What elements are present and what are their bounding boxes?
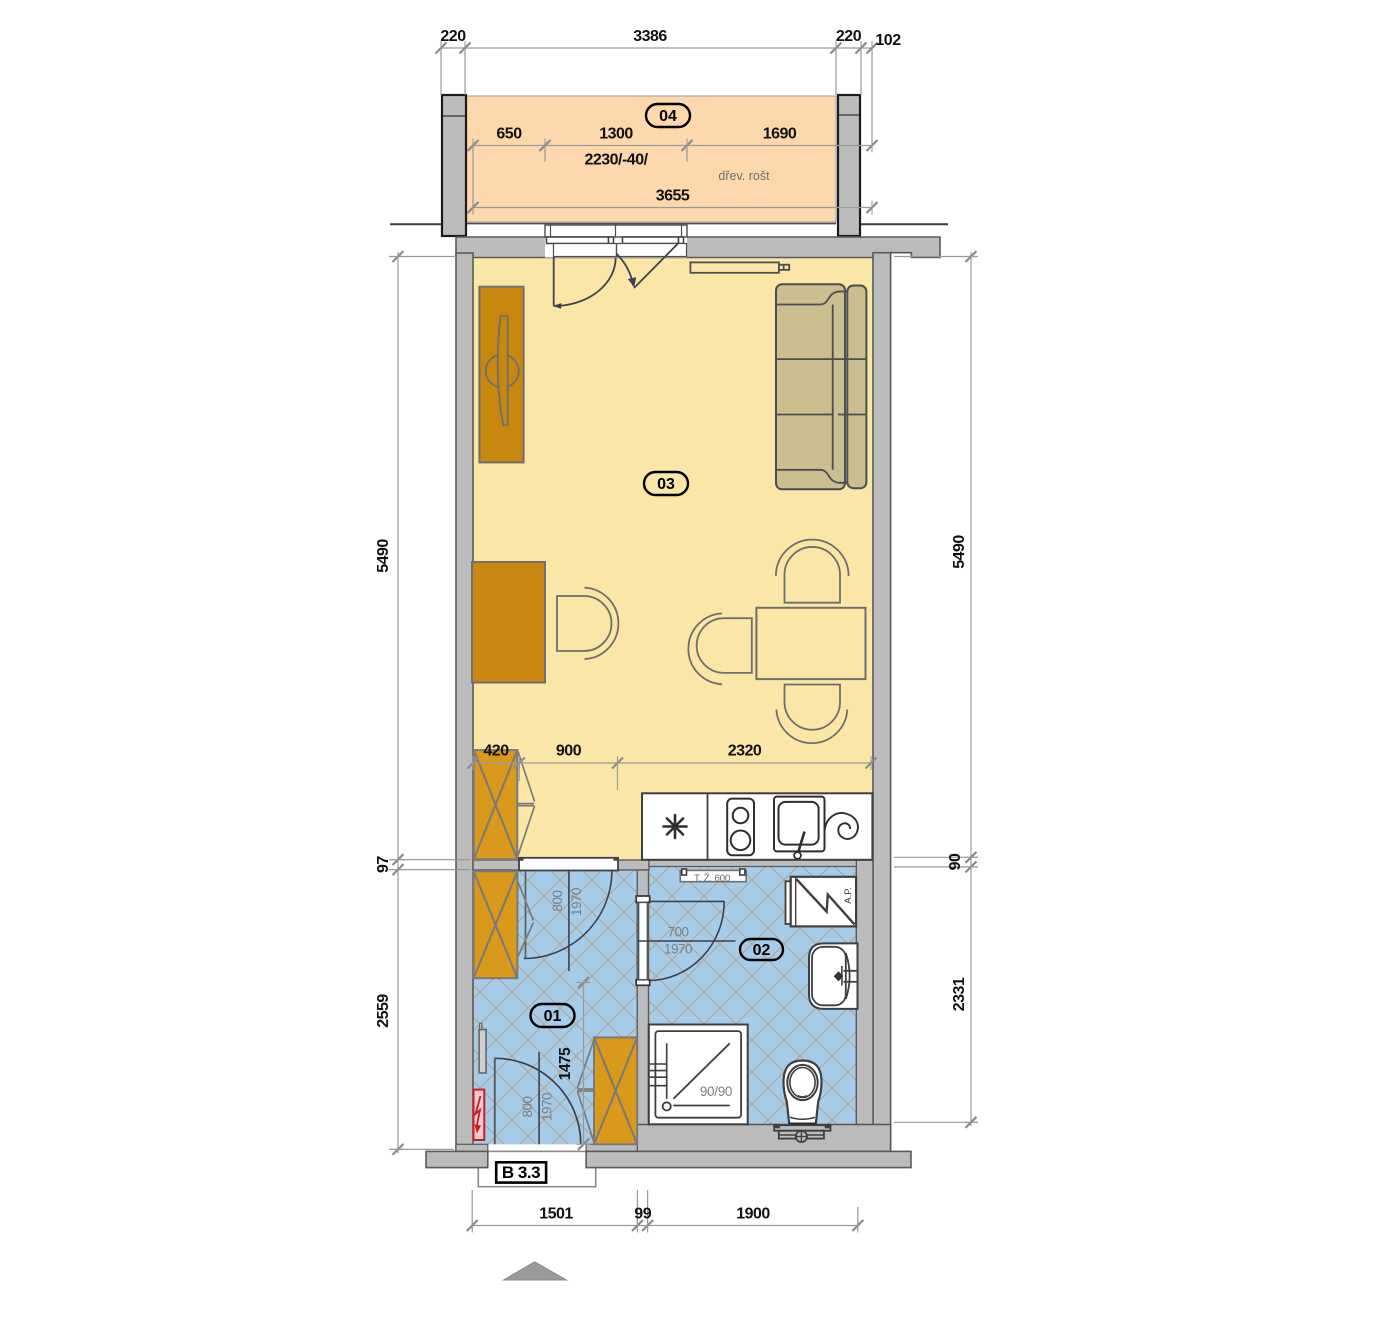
svg-text:3655: 3655 (656, 188, 690, 205)
svg-text:90: 90 (947, 853, 964, 870)
svg-text:02: 02 (753, 942, 771, 959)
svg-text:04: 04 (659, 108, 677, 125)
svg-text:1970: 1970 (664, 942, 692, 957)
svg-text:2230/-40/: 2230/-40/ (584, 152, 648, 169)
svg-text:03: 03 (657, 476, 675, 493)
svg-text:dřev. rošt: dřev. rošt (718, 169, 770, 183)
svg-text:97: 97 (375, 856, 392, 873)
svg-text:220: 220 (836, 28, 862, 45)
svg-text:B 3.3: B 3.3 (502, 1163, 540, 1182)
svg-text:1475: 1475 (557, 1047, 574, 1080)
svg-text:1501: 1501 (539, 1206, 573, 1223)
svg-text:650: 650 (496, 126, 522, 143)
svg-text:2331: 2331 (951, 977, 968, 1011)
svg-text:90/90: 90/90 (700, 1084, 732, 1099)
svg-text:A.P.: A.P. (843, 887, 854, 904)
svg-text:102: 102 (875, 32, 901, 49)
svg-text:1970: 1970 (540, 1093, 555, 1121)
svg-text:800: 800 (550, 890, 565, 911)
svg-text:5490: 5490 (951, 535, 968, 569)
svg-text:01: 01 (544, 1008, 562, 1025)
svg-text:800: 800 (520, 1096, 535, 1117)
svg-text:2559: 2559 (375, 994, 392, 1028)
svg-text:2320: 2320 (728, 743, 762, 760)
svg-text:T. Ž. 600: T. Ž. 600 (694, 872, 731, 885)
svg-text:3386: 3386 (633, 28, 667, 45)
svg-text:220: 220 (440, 28, 466, 45)
svg-text:1690: 1690 (763, 126, 797, 143)
svg-text:5490: 5490 (375, 539, 392, 573)
svg-text:700: 700 (667, 925, 688, 940)
svg-text:99: 99 (634, 1206, 651, 1223)
svg-text:900: 900 (556, 743, 582, 760)
svg-text:1970: 1970 (569, 888, 584, 916)
svg-text:1900: 1900 (736, 1206, 770, 1223)
svg-text:1300: 1300 (599, 126, 633, 143)
svg-text:420: 420 (483, 743, 509, 760)
